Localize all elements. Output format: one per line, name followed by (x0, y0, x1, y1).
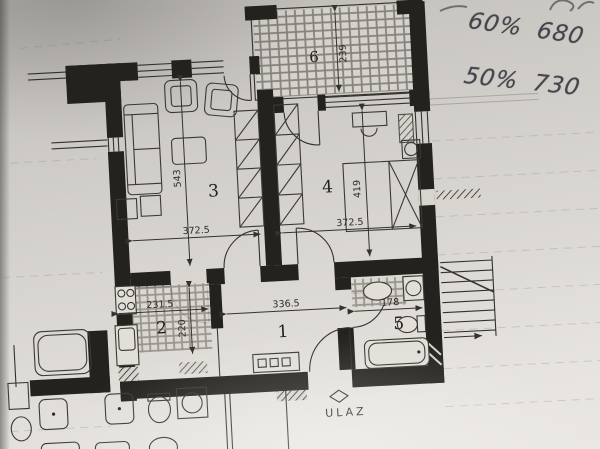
room-label-kitchen: 2 (156, 318, 168, 339)
sink-cabinet (118, 367, 139, 382)
handwriting-fragment (440, 0, 594, 11)
side-table (140, 195, 161, 216)
insulation-hatch (436, 189, 480, 200)
room-label-bath: 5 (393, 314, 405, 335)
neighbor-fixture (149, 437, 178, 449)
room-label-bedroom: 4 (322, 177, 334, 198)
neighbor-fixture (95, 441, 130, 449)
terrace-room: 6 239 (244, 0, 427, 100)
dim-living-depth: 543 (172, 169, 184, 188)
toilet-tank (417, 316, 426, 332)
neighbor-fixture (11, 416, 32, 441)
bathroom: 5 178 (351, 276, 430, 370)
dim-terrace-depth: 239 (338, 44, 350, 63)
entrance-arrow-icon (330, 390, 349, 403)
stairwell (440, 256, 496, 339)
stove (115, 286, 136, 315)
neighbor-fixture (8, 382, 29, 409)
entrance-step (277, 390, 307, 402)
dim-bedroom-width: 372.5 (336, 217, 364, 229)
living-room: 3 372.5 543 (110, 76, 266, 269)
room-label-terrace: 6 (309, 48, 319, 66)
room-label-living: 3 (208, 181, 220, 202)
dim-bedroom-depth: 419 (352, 180, 364, 199)
dim-kitchen-width: 231.5 (146, 299, 174, 311)
dim-kitchen-depth: 220 (177, 319, 189, 338)
terrace-wall-stub (244, 5, 277, 21)
dresser (352, 111, 387, 127)
dim-bath-width: 178 (381, 297, 400, 309)
room-label-hall: 1 (277, 322, 289, 343)
entrance-label: ULAZ (325, 405, 367, 420)
neighbor-fixture (41, 442, 80, 449)
coffee-table (171, 137, 206, 165)
threshold (179, 361, 208, 374)
lamp (404, 142, 418, 156)
dim-living-width: 372.5 (182, 225, 210, 237)
dim-hall-width: 336.5 (272, 298, 300, 310)
floor-plan-photo: 6 239 (0, 0, 600, 449)
shoe-cabinet (253, 352, 300, 372)
radiator-hatch (398, 114, 413, 143)
